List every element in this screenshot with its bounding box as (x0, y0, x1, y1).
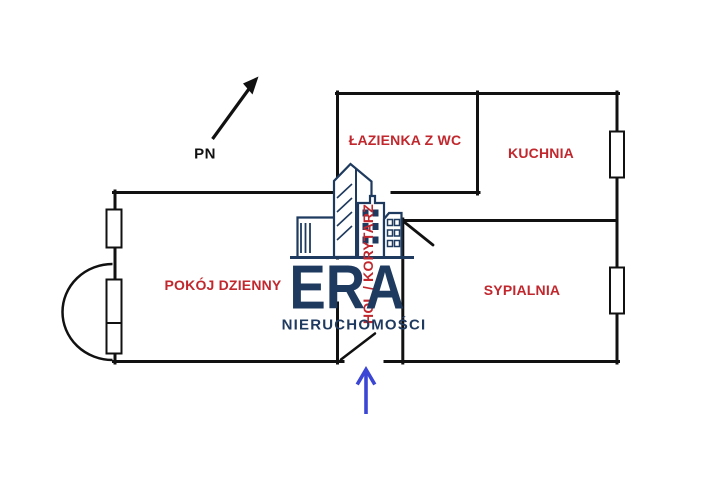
logo-building-left (298, 218, 335, 258)
entrance-arrow-icon (357, 370, 375, 415)
window-symbol-balcony-door (107, 280, 122, 354)
era-logo-wordmark: ERA (289, 253, 404, 324)
era-logo-buildings (290, 164, 414, 258)
kitchen-door-leaf (403, 221, 433, 245)
room-label-pokoj-dzienny: POKÓJ DZIENNY (165, 277, 282, 293)
room-label-kuchnia: KUCHNIA (508, 145, 574, 161)
balcony-arc (63, 264, 113, 360)
room-label-lazienka: ŁAZIENKA Z WC (349, 132, 462, 148)
entrance-door-leaf (341, 334, 375, 360)
window-symbol-kitchen (610, 132, 624, 178)
window-symbol-living-upper (107, 210, 122, 248)
window-symbol-bedroom (610, 268, 624, 314)
room-label-sypialnia: SYPIALNIA (484, 282, 560, 298)
north-arrow-icon (213, 77, 259, 140)
era-logo-subtitle: NIERUCHOMOŚCI (282, 317, 427, 334)
north-label: PN (194, 146, 216, 163)
floor-plan-drawing (0, 0, 707, 500)
floor-plan: PN ŁAZIENKA Z WC KUCHNIA POKÓJ DZIENNY S… (0, 0, 707, 500)
